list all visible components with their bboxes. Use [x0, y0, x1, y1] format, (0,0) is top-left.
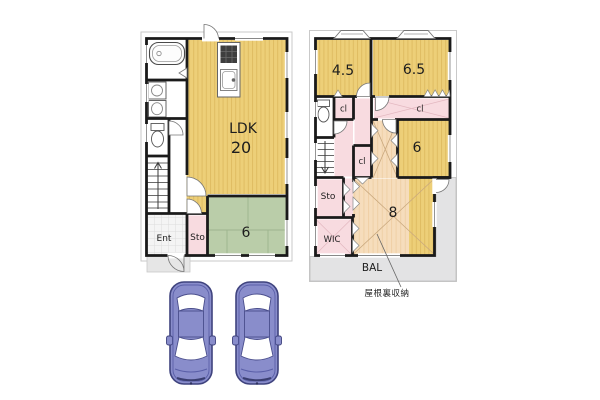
- storage-2f-label: Sto: [321, 192, 336, 202]
- parking-cars: [167, 282, 282, 385]
- attic-annotation: 屋根裏収納: [364, 288, 409, 299]
- wic-label: WIC: [324, 235, 341, 245]
- room-8-label: 8: [389, 205, 398, 221]
- toilet-1f-icon: [151, 124, 164, 148]
- ldk-label: LDK: [229, 121, 258, 137]
- balcony-label: BAL: [362, 262, 382, 274]
- bathtub-icon: [150, 43, 185, 65]
- room-6-2f: [399, 121, 450, 177]
- closet-a-label: cl: [340, 105, 347, 115]
- storage-1f-label: Sto: [190, 233, 205, 243]
- room-6-2f-label: 6: [413, 140, 422, 156]
- stairs-1f: [147, 163, 170, 210]
- stairs-down-arrow: [322, 141, 329, 173]
- room-6_5-label: 6.5: [403, 62, 425, 78]
- car-icon: [167, 282, 216, 385]
- closet-b-label: cl: [416, 105, 423, 115]
- washer-icon: [149, 101, 167, 118]
- toilet-2f-icon: [318, 100, 330, 122]
- ldk-size-label: 20: [231, 138, 251, 157]
- stove-icon: [221, 46, 238, 64]
- kitchen-counter: [218, 43, 241, 98]
- floor-plan-svg: LDK 20 6 Ent Sto 4.5 6.5 cl cl cl 6 8 St…: [0, 0, 600, 400]
- tatami-size-label: 6: [242, 225, 251, 241]
- entrance-label: Ent: [157, 234, 172, 244]
- closet-c-label: cl: [358, 157, 365, 167]
- car-icon: [233, 282, 282, 385]
- stairs-2f: [316, 141, 335, 173]
- room-4_5-label: 4.5: [332, 63, 354, 79]
- vanity-sink-icon: [149, 82, 167, 99]
- floor-plan-image: LDK 20 6 Ent Sto 4.5 6.5 cl cl cl 6 8 St…: [0, 0, 600, 400]
- kitchen-sink-icon: [221, 70, 238, 91]
